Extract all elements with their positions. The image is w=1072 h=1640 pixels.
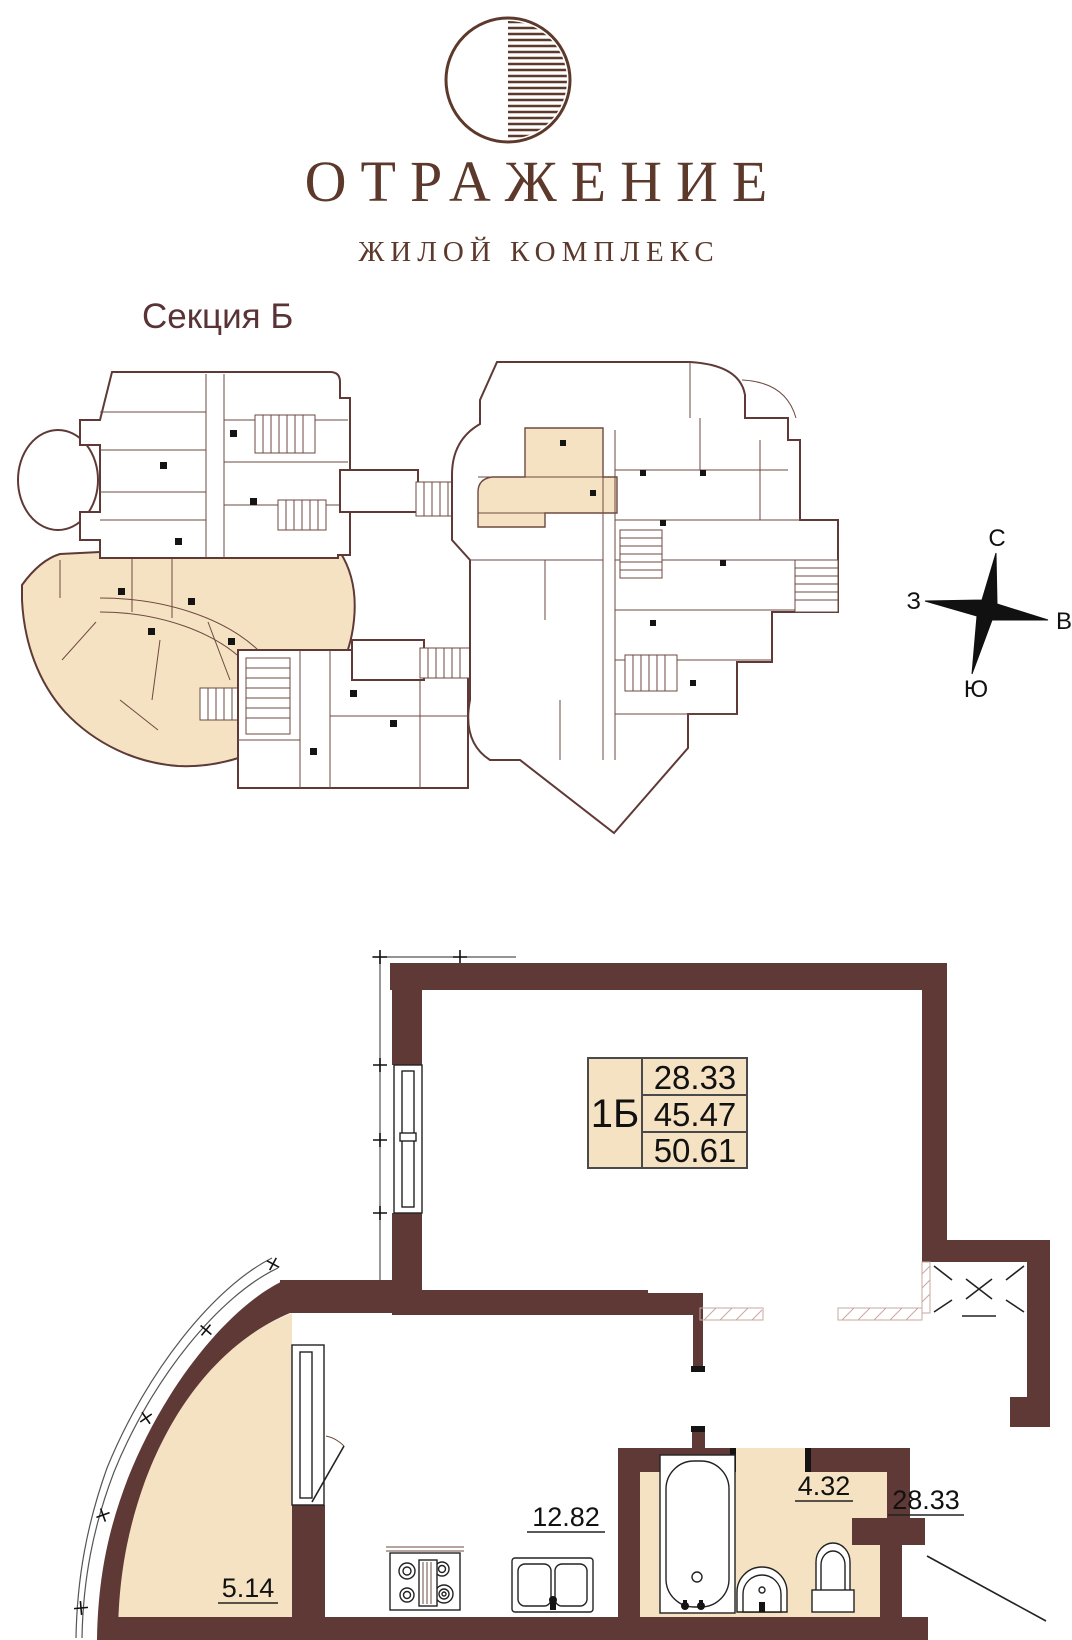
brand-subtitle: ЖИЛОЙ КОМПЛЕКС (0, 236, 1072, 269)
unit-info-table: 1Б 28.33 45.47 50.61 (588, 1058, 747, 1169)
compass-star-icon (925, 553, 1048, 674)
toilet-icon (812, 1543, 854, 1612)
unit-number: 1Б (591, 1092, 640, 1136)
compass-rose: С В Ю З (890, 495, 1072, 705)
balcony-area-label: 5.14 (222, 1573, 275, 1603)
section-label: Секция Б (142, 297, 293, 337)
unit-area: 45.47 (654, 1096, 737, 1133)
closet-marks-icon (934, 1266, 1024, 1316)
compass-east-label: В (1056, 608, 1072, 635)
washbasin-icon (737, 1567, 787, 1612)
unit-living-area: 28.33 (654, 1059, 737, 1096)
brand-logo-icon (438, 8, 578, 148)
apartment-plan: 1Б 28.33 45.47 50.61 5.14 12.82 4.32 28.… (0, 880, 1072, 1640)
hatch-strips (700, 1262, 930, 1320)
bathroom-area-label: 4.32 (798, 1471, 851, 1501)
reflection-lines-icon (508, 22, 570, 136)
kitchen-area-label: 12.82 (532, 1502, 600, 1532)
living-area-label: 28.33 (892, 1485, 960, 1515)
balcony-door-window (292, 1345, 344, 1505)
compass-north-label: С (988, 525, 1005, 552)
compass-south-label: Ю (964, 676, 988, 703)
stove-icon (386, 1547, 464, 1610)
compass-west-label: З (907, 588, 922, 615)
bathtub-icon (660, 1455, 735, 1613)
section-floor-plan (440, 345, 860, 850)
entrance-door-line (927, 1556, 1046, 1621)
brand-title: ОТРАЖЕНИЕ (0, 148, 1072, 215)
poster: ОТРАЖЕНИЕ ЖИЛОЙ КОМПЛЕКС Секция Б (0, 0, 1072, 1640)
unit-total-area: 50.61 (654, 1132, 737, 1169)
kitchen-sink-icon (512, 1558, 593, 1612)
living-window (394, 1065, 422, 1213)
building-overview-plan (0, 355, 490, 800)
